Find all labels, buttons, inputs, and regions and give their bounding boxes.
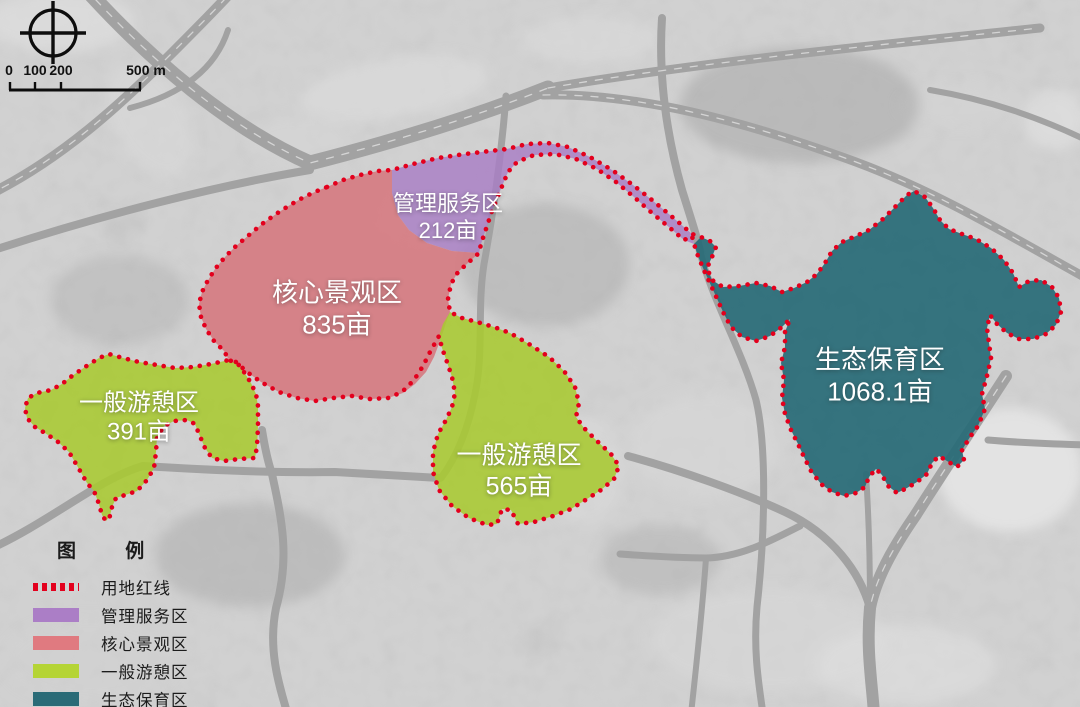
legend-item-label: 生态保育区 xyxy=(101,687,189,707)
recreation-zone-swatch xyxy=(33,664,79,678)
legend-item-label: 一般游憩区 xyxy=(101,659,189,683)
scale-label: 500 m xyxy=(126,62,166,78)
management-zone-swatch xyxy=(33,608,79,622)
site-zoning-map: 0100200500 m 管理服务区212亩核心景观区835亩一般游憩区391亩… xyxy=(0,0,1080,707)
legend-item-label: 用地红线 xyxy=(101,575,171,599)
legend-item-label: 核心景观区 xyxy=(101,631,189,655)
legend-title: 图 例 xyxy=(57,536,189,563)
scale-label: 100 xyxy=(23,62,46,78)
ecology-zone-swatch xyxy=(33,692,79,706)
legend-item-core: 核心景观区 xyxy=(33,629,189,657)
legend-item-recreation: 一般游憩区 xyxy=(33,657,189,685)
core-zone-swatch xyxy=(33,636,79,650)
legend-item-ecology: 生态保育区 xyxy=(33,685,189,707)
scale-label: 0 xyxy=(5,62,13,78)
scale-label: 200 xyxy=(49,62,72,78)
legend-item-management: 管理服务区 xyxy=(33,601,189,629)
boundary-line-swatch xyxy=(33,583,79,591)
legend: 图 例 用地红线 管理服务区 核心景观区 一般游憩区 生态保育区 xyxy=(33,536,189,707)
legend-item-label: 管理服务区 xyxy=(101,603,189,627)
legend-item-boundary: 用地红线 xyxy=(33,573,189,601)
